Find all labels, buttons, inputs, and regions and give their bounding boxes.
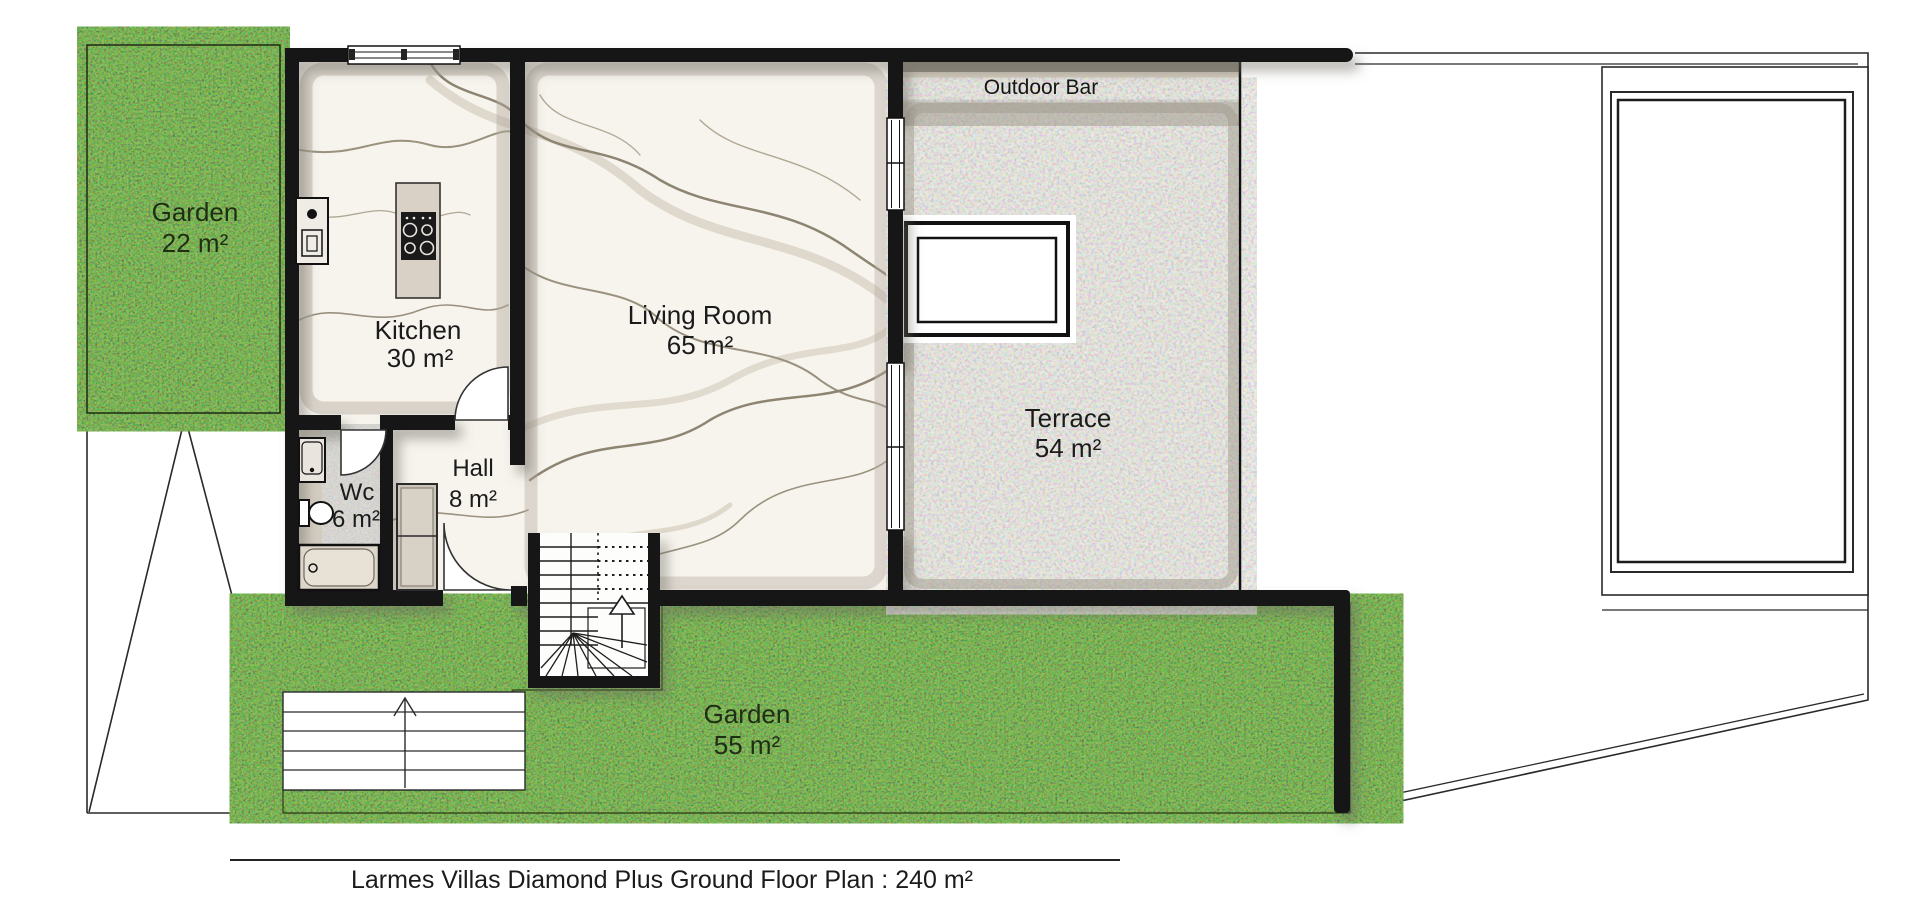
bathtub-icon [299,545,379,590]
page-title: Larmes Villas Diamond Plus Ground Floor … [351,866,973,894]
wall-left [285,48,299,606]
floor-plan-page: Garden 22 m² Kitchen 30 m² Living Room 6… [0,0,1920,918]
kitchen-label: Kitchen [375,315,462,345]
terrace-table [898,215,1076,343]
sink-icon [299,438,325,482]
wc-area-label: 6 m² [332,506,380,533]
stove-icon [401,212,436,260]
hall-closet [397,484,437,590]
pool-deck [1602,67,1868,610]
terrace-label: Terrace [1025,403,1112,433]
wall-kitchen-divider [510,62,525,465]
garden-left-label: Garden [152,197,239,227]
outdoor-bar-label: Outdoor Bar [984,76,1098,99]
living-room-area-label: 65 m² [667,330,734,360]
terrace-area-label: 54 m² [1035,433,1102,463]
garden-left-area-label: 22 m² [162,228,229,258]
sliding-door-lower [887,363,904,530]
exterior-steps [283,692,525,790]
kitchen-appliance-icon [296,198,328,264]
kitchen-island [396,183,440,298]
kitchen-area-label: 30 m² [387,343,454,373]
living-room-label: Living Room [628,300,773,330]
kitchen-window [348,46,460,64]
floor-plan-svg: Garden 22 m² Kitchen 30 m² Living Room 6… [0,0,1920,918]
wc-label: Wc [340,479,375,506]
wall-garden-top [660,590,1342,606]
interior-staircase [540,533,648,676]
hall-label: Hall [452,455,493,482]
pool [1618,100,1845,562]
driveway-triangle [89,417,289,812]
entrance-hinge-block [511,586,527,606]
hall-area-label: 8 m² [449,486,497,513]
sliding-door-upper [887,118,904,210]
garden-bottom-area-label: 55 m² [714,730,781,760]
title-block: Larmes Villas Diamond Plus Ground Floor … [230,860,1120,894]
site-diagonal-boundary-inner [1348,694,1864,804]
toilet-icon [299,500,333,526]
garden-bottom-label: Garden [704,699,791,729]
